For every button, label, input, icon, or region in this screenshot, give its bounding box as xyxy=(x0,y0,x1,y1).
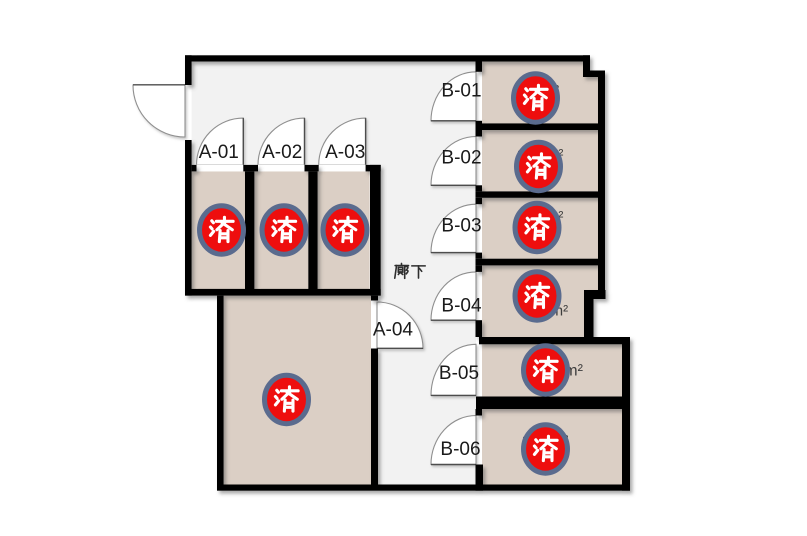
svg-text:A-03: A-03 xyxy=(325,142,365,163)
svg-text:B-01: B-01 xyxy=(441,81,481,102)
svg-text:B-05: B-05 xyxy=(439,363,479,384)
svg-text:B-06: B-06 xyxy=(440,439,480,460)
svg-text:B-03: B-03 xyxy=(441,216,481,237)
svg-text:A-02: A-02 xyxy=(262,142,302,163)
svg-text:B-04: B-04 xyxy=(441,296,482,317)
svg-text:B-02: B-02 xyxy=(441,148,481,169)
svg-text:A-04: A-04 xyxy=(373,320,414,341)
svg-text:A-01: A-01 xyxy=(199,142,239,163)
